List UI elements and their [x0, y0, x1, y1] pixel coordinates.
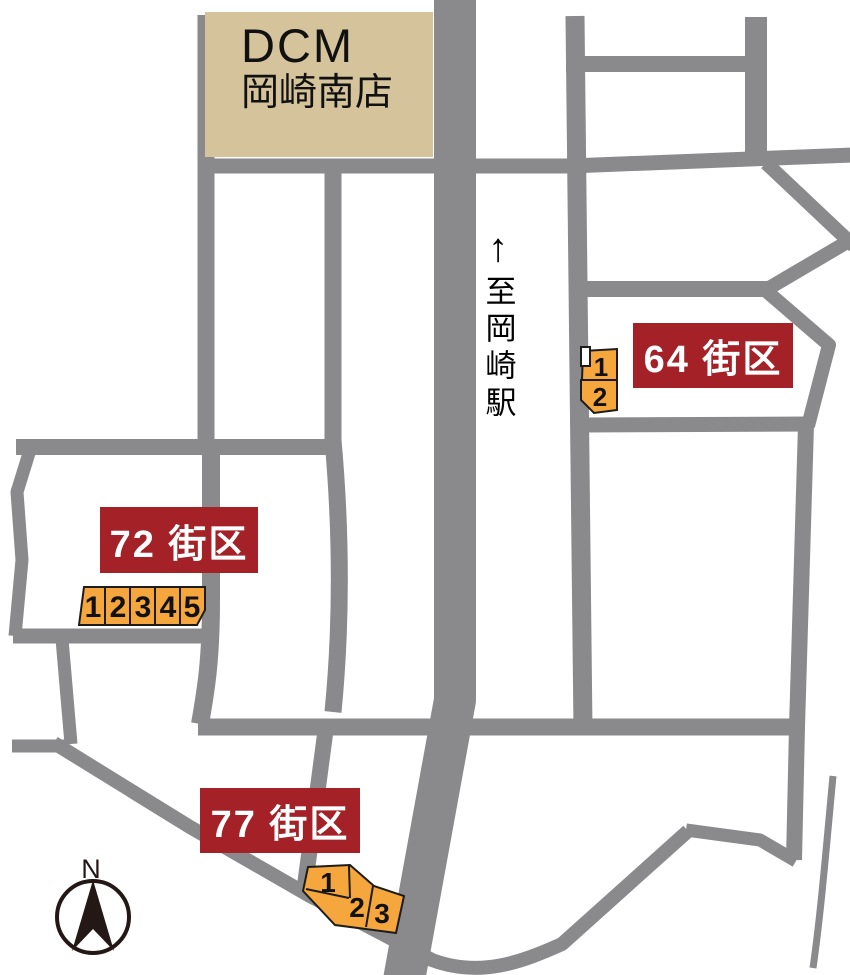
block-label-64: 64 街区	[633, 323, 793, 388]
lot-72-1-number: 1	[85, 591, 102, 624]
road-diagonal-tail	[686, 830, 796, 861]
block-label-77: 77 街区	[200, 788, 360, 853]
block-64-lots: 1 2	[581, 347, 617, 413]
lot-64-1-number: 1	[594, 352, 608, 382]
road-vertical-southeast	[794, 425, 806, 860]
direction-sign: ↑ 至岡崎駅	[474, 228, 522, 424]
lot-77-2-number: 2	[349, 892, 365, 923]
landmark-building: DCM 岡崎南店	[205, 12, 433, 157]
lot-77-1-number: 1	[320, 867, 336, 898]
lot-72-4-number: 4	[160, 591, 177, 624]
landmark-name-ja: 岡崎南店	[241, 72, 433, 116]
road-fork-up-right	[764, 238, 850, 291]
road-vertical-mid-middle	[333, 440, 339, 712]
road-horizontal-64-bottom	[583, 424, 810, 425]
lot-72-2-number: 2	[110, 591, 127, 624]
road-diagonal-northeast	[766, 163, 850, 246]
lot-77-3-number: 3	[374, 898, 390, 929]
up-arrow-icon: ↑	[474, 228, 522, 268]
block-72-lots: 1 2 3 4 5	[79, 587, 205, 625]
road-vertical-west-lower	[200, 447, 211, 724]
road-diagonal-main	[54, 743, 688, 968]
road-left-edge	[15, 450, 30, 636]
compass: N	[57, 854, 129, 953]
lot-72-5-number: 5	[184, 591, 201, 624]
direction-destination: 至岡崎駅	[476, 274, 521, 424]
lot-64-2-number: 2	[593, 382, 607, 412]
lot-64-notch-marker	[581, 347, 590, 366]
site-map: 1 2 1 2 3 4 5 1 2 3 N	[0, 0, 850, 975]
road-slant-southwest	[62, 639, 71, 744]
block-label-72: 72 街区	[100, 507, 258, 573]
lot-72-3-number: 3	[135, 591, 152, 624]
landmark-name-en: DCM	[241, 20, 433, 72]
road-thin-arc-east	[813, 776, 833, 968]
block-77-lots: 1 2 3	[303, 865, 404, 933]
